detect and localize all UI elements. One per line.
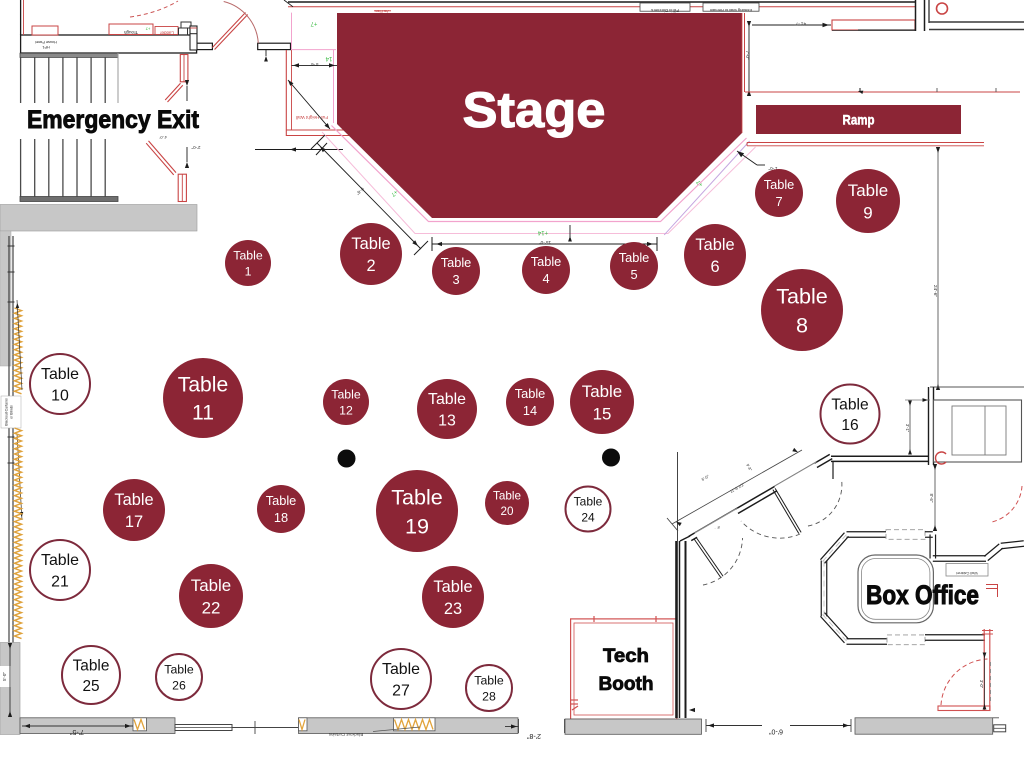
svg-text:Box Office: Box Office <box>866 580 979 610</box>
svg-text:Booth: Booth <box>599 673 654 695</box>
svg-text:+7: +7 <box>145 26 150 31</box>
svg-text:House Panel: House Panel <box>35 40 57 44</box>
svg-text:Full Height Wall: Full Height Wall <box>296 115 328 120</box>
svg-text:Emergency Exit: Emergency Exit <box>27 106 200 134</box>
svg-text:Stage: Stage <box>463 82 606 138</box>
svg-text:3'-1": 3'-1" <box>905 424 910 433</box>
svg-text:14: 14 <box>325 55 332 61</box>
svg-text:Wall Cabinet: Wall Cabinet <box>955 571 977 575</box>
svg-text:Blackout Curtains: Blackout Curtains <box>328 732 363 737</box>
svg-text:8'-6": 8'-6" <box>929 494 934 503</box>
svg-text:Tech: Tech <box>603 645 649 667</box>
svg-text:41'-7": 41'-7" <box>794 21 807 27</box>
svg-text:Blackout Curtains: Blackout Curtains <box>5 398 9 426</box>
svg-text:Ramp: Ramp <box>843 112 875 128</box>
svg-text:7'-0": 7'-0" <box>745 51 750 60</box>
svg-text:15'-0": 15'-0" <box>539 239 552 245</box>
svg-text:5'-6": 5'-6" <box>309 62 318 67</box>
svg-text:or Blinds: or Blinds <box>10 405 14 419</box>
svg-text:Fill in Dimmers: Fill in Dimmers <box>651 8 679 13</box>
svg-text:+7: +7 <box>310 20 318 26</box>
svg-text:Existing Wall to Remain: Existing Wall to Remain <box>710 8 752 13</box>
svg-text:+14: +14 <box>537 229 548 235</box>
svg-text:Trough: Trough <box>123 30 138 35</box>
svg-text:6'-0": 6'-0" <box>769 728 783 735</box>
svg-text:HP1: HP1 <box>42 45 49 49</box>
svg-text:4'-0": 4'-0" <box>158 135 167 140</box>
svg-text:3'-0": 3'-0" <box>979 680 984 689</box>
svg-text:7'-5": 7'-5" <box>70 728 84 735</box>
svg-text:5'-0": 5'-0" <box>2 672 7 681</box>
svg-text:2'-0": 2'-0" <box>191 145 200 150</box>
svg-text:2'-8": 2'-8" <box>527 732 541 739</box>
svg-text:24'-6": 24'-6" <box>932 285 938 298</box>
